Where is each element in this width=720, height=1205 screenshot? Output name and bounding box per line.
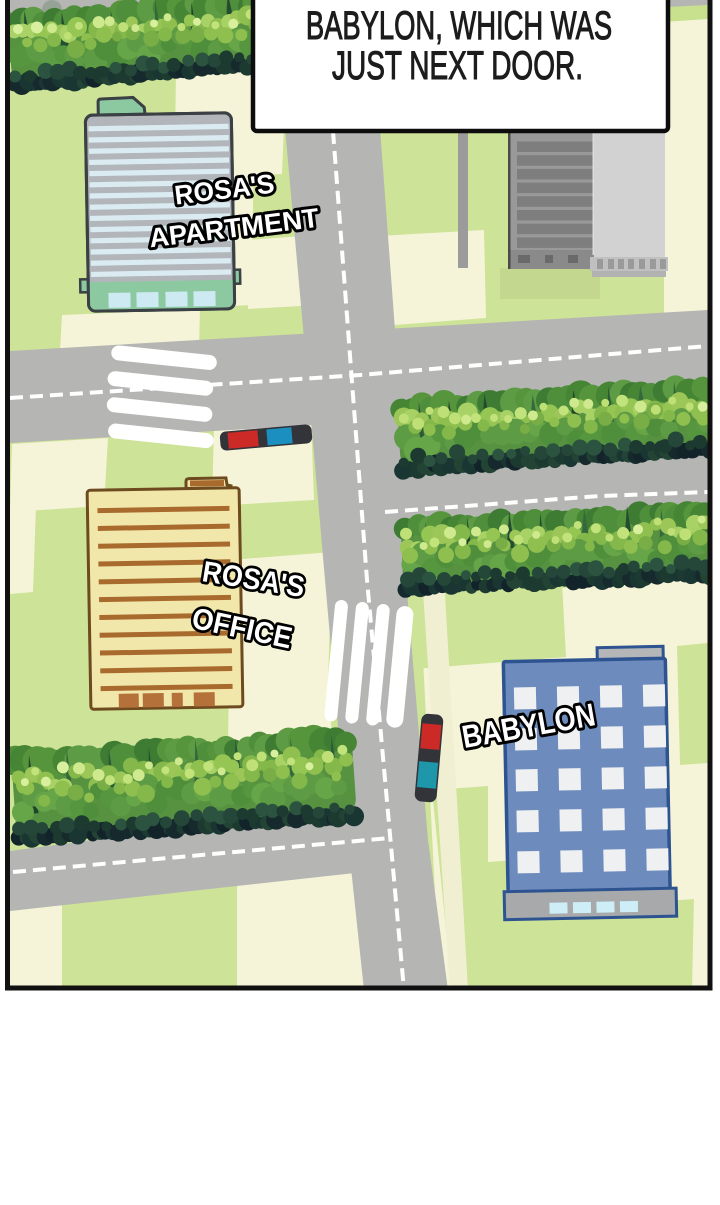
svg-text:BABYLON, WHICH WAS: BABYLON, WHICH WAS <box>306 4 612 48</box>
svg-text:JUST NEXT DOOR.: JUST NEXT DOOR. <box>332 44 583 88</box>
